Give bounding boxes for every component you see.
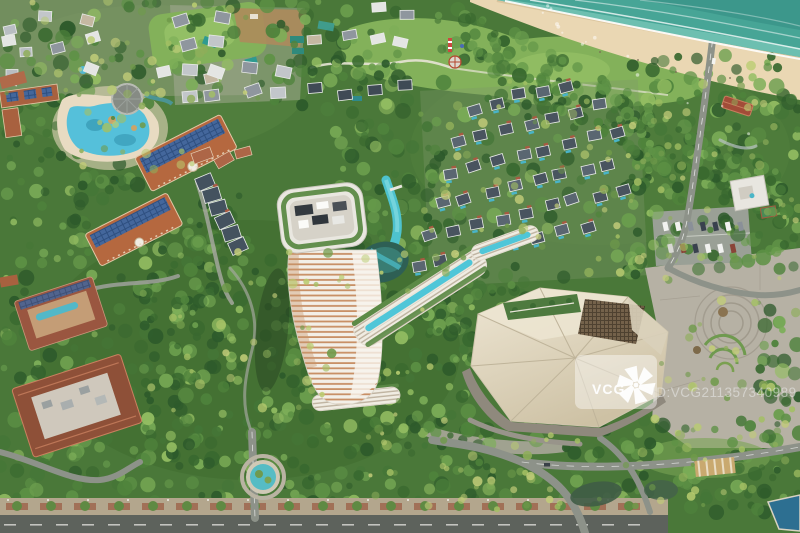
- villa: [368, 84, 383, 95]
- villa: [2, 35, 17, 47]
- bottom-road: [0, 515, 668, 533]
- tower-roof: [275, 181, 368, 255]
- villa: [242, 61, 258, 74]
- villa: [372, 2, 387, 12]
- aerial-photo: VCG ID:VCG211357340989: [0, 0, 800, 533]
- villa: [308, 82, 323, 93]
- watermark-id-text: ID:VCG211357340989: [652, 385, 797, 400]
- aerial-photo-svg: VCG ID:VCG211357340989: [0, 0, 800, 533]
- plaza-rock: [693, 346, 701, 354]
- villa: [182, 64, 198, 76]
- villa: [337, 89, 352, 101]
- villa: [446, 225, 461, 237]
- villa: [592, 98, 606, 110]
- villa: [400, 10, 414, 19]
- plaza-rock: [718, 307, 728, 317]
- villa: [342, 29, 357, 40]
- villa: [208, 35, 224, 48]
- villa: [398, 80, 412, 91]
- villa: [270, 87, 286, 99]
- small-pool: [352, 96, 362, 101]
- round-pond: [250, 464, 276, 490]
- villa: [307, 35, 322, 45]
